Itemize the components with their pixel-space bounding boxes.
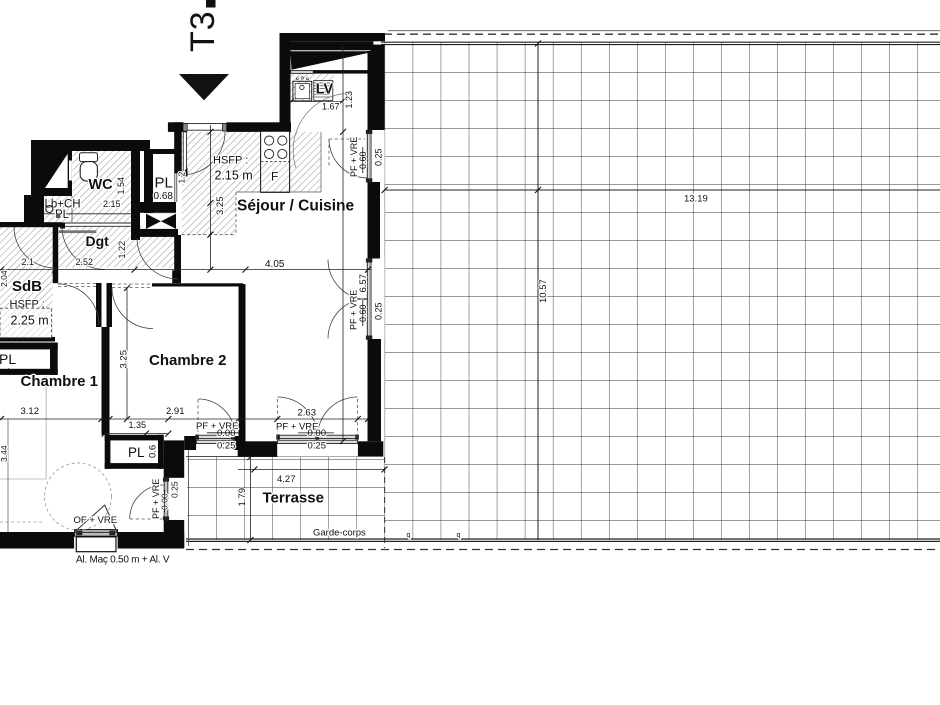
svg-text:WC: WC: [89, 177, 114, 193]
svg-text:Séjour / Cuisine: Séjour / Cuisine: [237, 198, 355, 215]
svg-text:Chambre 1: Chambre 1: [21, 373, 99, 390]
svg-text:1.54: 1.54: [116, 177, 126, 195]
svg-text:6.57: 6.57: [358, 274, 369, 293]
svg-text:PL: PL: [155, 175, 173, 192]
svg-text:1.22: 1.22: [117, 241, 127, 259]
svg-text:3.12: 3.12: [21, 406, 40, 417]
svg-text:PL: PL: [0, 351, 16, 367]
svg-text:Al. Maç 0.50 m + Al. V: Al. Maç 0.50 m + Al. V: [76, 555, 170, 566]
svg-text:3.44: 3.44: [0, 445, 9, 462]
svg-text:F: F: [271, 170, 278, 184]
svg-text:q: q: [407, 532, 411, 539]
svg-text:2.1: 2.1: [22, 257, 35, 267]
svg-text:0.25: 0.25: [374, 302, 384, 320]
svg-text:2.25 m: 2.25 m: [11, 314, 49, 328]
svg-text:Terrasse: Terrasse: [263, 490, 324, 507]
svg-text:SdB: SdB: [12, 278, 42, 295]
svg-text:2.15 m: 2.15 m: [215, 169, 253, 183]
svg-text:0.25: 0.25: [374, 148, 384, 166]
svg-text:13.19: 13.19: [684, 194, 708, 205]
svg-text:0.25: 0.25: [308, 441, 327, 452]
svg-text:1.23: 1.23: [344, 91, 354, 109]
svg-text:3.25: 3.25: [119, 350, 130, 369]
svg-text:q: q: [457, 532, 461, 539]
svg-text:1.79: 1.79: [237, 488, 248, 507]
svg-text:PF + VRE: PF + VRE: [349, 290, 359, 330]
svg-text:Chambre 2: Chambre 2: [149, 352, 227, 369]
svg-text:4.05: 4.05: [265, 259, 285, 270]
svg-text:0.00: 0.00: [217, 428, 236, 439]
svg-text:0.00: 0.00: [308, 428, 327, 439]
svg-text:2.04: 2.04: [0, 270, 9, 287]
svg-text:Garde-corps: Garde-corps: [313, 528, 366, 539]
svg-text:2.63: 2.63: [298, 408, 317, 419]
svg-text:2.91: 2.91: [166, 406, 185, 417]
svg-text:1.35: 1.35: [129, 420, 147, 430]
svg-text:0.25: 0.25: [170, 481, 180, 498]
svg-text:T3 -: T3 -: [184, 0, 222, 52]
svg-text:2.15: 2.15: [103, 199, 121, 209]
svg-text:0.6: 0.6: [148, 445, 159, 458]
svg-text:HSFP :: HSFP :: [213, 155, 248, 167]
svg-text:2.52: 2.52: [76, 257, 94, 267]
svg-text:0.68: 0.68: [154, 191, 174, 202]
svg-text:10.57: 10.57: [538, 279, 549, 303]
svg-text:4.27: 4.27: [277, 474, 296, 485]
svg-text:LV: LV: [316, 82, 334, 98]
svg-text:1.2: 1.2: [177, 171, 187, 183]
svg-text:OF + VRE: OF + VRE: [74, 515, 118, 526]
svg-text:0.25: 0.25: [217, 441, 236, 452]
svg-text:PL: PL: [128, 445, 145, 460]
svg-text:3.25: 3.25: [215, 197, 226, 216]
svg-text:Dgt: Dgt: [86, 233, 110, 249]
svg-text:1.67: 1.67: [322, 102, 340, 112]
